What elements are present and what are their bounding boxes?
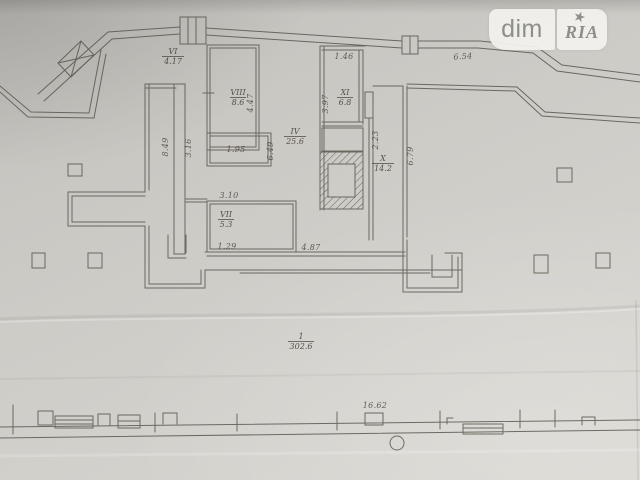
survey-circle-marker — [390, 436, 404, 450]
yard-boundary — [0, 50, 106, 118]
room-label-x: X14.2 — [369, 154, 397, 173]
dimension-label-1-29: 1.29 — [213, 242, 241, 252]
watermark-ria: ★ RIA — [557, 9, 607, 50]
dimension-label-4-87: 4.87 — [297, 243, 325, 253]
watermark-dim: dim — [489, 9, 555, 50]
dimension-label-6-54: 6.54 — [449, 51, 478, 63]
dimension-label-1-46: 1.46 — [330, 52, 358, 62]
dimension-label-6-79: 6.79 — [406, 142, 416, 170]
room-label-iv: IV25.6 — [281, 127, 309, 146]
room-label-xi: XI6.8 — [331, 88, 359, 107]
dimension-label-16-62: 16.62 — [358, 401, 392, 411]
site-baseline — [0, 420, 640, 427]
duct-shaft — [365, 92, 373, 118]
dimension-label-4-47: 4.47 — [246, 89, 256, 117]
hatched-stairwell — [320, 152, 363, 209]
dimension-label-2-23: 2.23 — [371, 126, 381, 154]
gate-bars-symbol — [180, 17, 206, 44]
room-label-vi: VI4.17 — [159, 47, 187, 66]
wall-opening-symbol — [402, 36, 418, 54]
dimension-label-1-95: 1.95 — [222, 145, 250, 155]
floorplan-drawing — [0, 0, 640, 480]
dimension-label-8-49: 8.49 — [161, 133, 171, 161]
room-label-vii: VII5.3 — [212, 210, 240, 229]
dimension-label-6-49: 6.49 — [266, 137, 276, 165]
room-label-total: 1302.6 — [287, 332, 315, 351]
pier-wall — [174, 84, 185, 254]
watermark-logo: dim ★ RIA — [489, 9, 607, 50]
room-vii-walls — [186, 199, 296, 252]
paper-creases — [0, 300, 640, 480]
site-boundary-strip — [0, 405, 640, 450]
dimension-label-3-97: 3.97 — [321, 90, 331, 118]
floorplan-photo: VI4.17 VIII8.6 XI6.8 IV25.6 X14.2 VII5.3… — [0, 0, 640, 480]
dimension-label-3-16: 3.16 — [184, 134, 194, 162]
dimension-label-3-10: 3.10 — [215, 191, 243, 201]
